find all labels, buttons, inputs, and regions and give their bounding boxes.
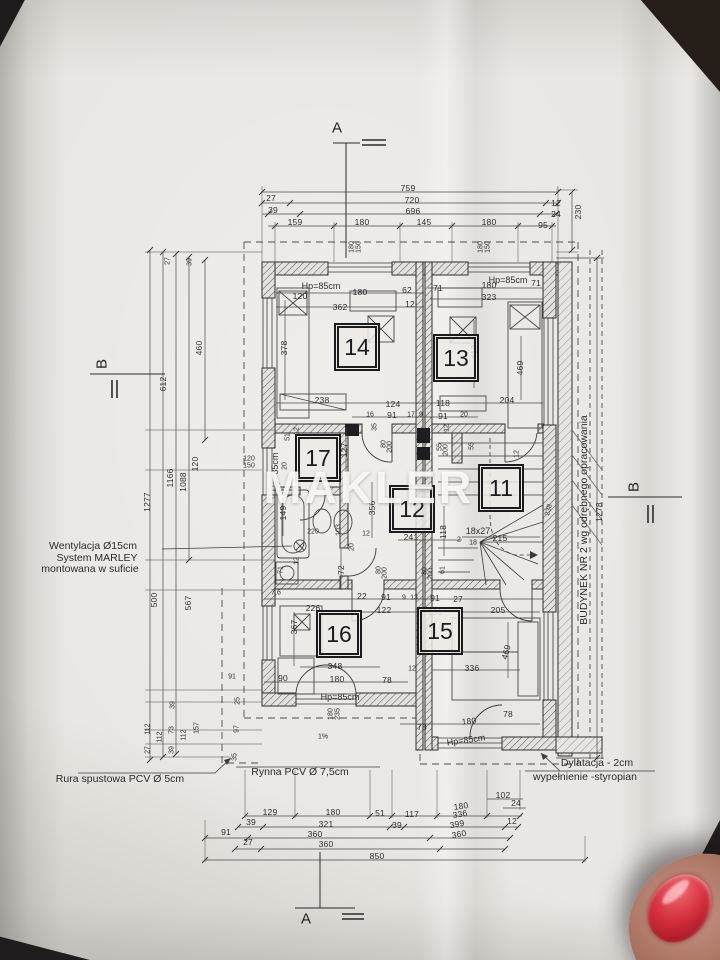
dim-label: 180	[461, 715, 477, 726]
dim-label: 12	[551, 198, 561, 208]
dim-label: 27	[266, 193, 276, 203]
dim-label: 122	[377, 605, 392, 615]
dim-label: wypełnienie -styropian	[533, 771, 637, 783]
dim-label: 22	[357, 591, 367, 601]
dim-label: 129	[263, 807, 278, 817]
dim-label: 35	[372, 423, 379, 431]
dim-label: 39	[392, 820, 402, 830]
dim-label: 200	[387, 441, 394, 453]
page: { "watermark": "MAKLER", "colors": { "pa…	[0, 0, 720, 960]
dim-label: B	[94, 359, 111, 369]
dim-label: 180	[328, 708, 335, 720]
makler-watermark: MAKLER	[264, 462, 474, 514]
dim-label: 12	[294, 557, 301, 565]
dim-label: A	[332, 120, 342, 137]
dim-label: 500	[149, 593, 159, 608]
dim-label: 469	[515, 361, 525, 376]
dim-label: 205	[491, 605, 506, 615]
dim-label: 12	[507, 816, 517, 826]
dim-label: 159	[288, 217, 303, 227]
dim-label: 360	[451, 828, 467, 840]
dim-label: Dylatacja - 2cm	[561, 757, 633, 769]
dim-label: 12	[444, 424, 451, 432]
dim-label: 118	[438, 525, 448, 539]
dim-label: 90	[278, 673, 288, 683]
dim-label: 24	[511, 798, 521, 808]
dim-label: 180	[330, 674, 345, 684]
dim-label: 378	[279, 341, 289, 356]
dim-label: 367	[289, 620, 299, 635]
dim-label: 180	[326, 807, 341, 817]
dim-label: 336	[465, 663, 480, 673]
dim-label: 72	[336, 565, 346, 575]
dim-label: 9	[402, 595, 406, 602]
dim-label: 150	[243, 463, 255, 470]
dim-label: 12	[514, 450, 521, 458]
dim-label: 1278	[594, 502, 604, 522]
dim-label: B	[626, 482, 643, 492]
dim-label: 567	[183, 596, 193, 611]
dim-label: 180	[349, 241, 356, 253]
dim-label: 150	[485, 241, 492, 253]
dim-label: 78	[417, 722, 427, 732]
dim-label: 18x27	[466, 526, 491, 536]
dim-label: 20	[349, 543, 356, 551]
dim-label: 200	[443, 444, 450, 456]
dim-label: 200	[382, 567, 389, 579]
dim-label: 71	[433, 283, 443, 293]
room-number-13: 13	[433, 334, 479, 382]
room-number-15: 15	[417, 607, 463, 655]
dim-label: 27	[243, 837, 253, 847]
dim-label: 39	[169, 746, 176, 754]
dim-label: 469	[499, 644, 512, 661]
dim-label: 180	[482, 280, 497, 290]
dim-label: 238	[544, 503, 554, 516]
dim-label: 460	[194, 341, 204, 356]
dim-label: 321	[319, 819, 334, 829]
dim-label: 1088	[178, 472, 188, 492]
dim-label: 71	[278, 566, 285, 574]
dim-label: 51	[285, 433, 292, 441]
dim-label: 25	[235, 697, 242, 705]
room-number-16: 16	[316, 610, 362, 658]
dim-label: 12	[408, 666, 416, 673]
dim-label: BUDYNEK NR 2 wg odrębnego opracowania	[578, 415, 590, 625]
dim-label: 91	[387, 410, 397, 420]
dim-label: 323	[482, 292, 497, 302]
dim-label: 204	[500, 395, 515, 405]
dim-label: 360	[308, 829, 323, 839]
dim-label: Hp=85cm	[321, 692, 360, 702]
dim-label: 55	[469, 442, 476, 450]
dim-label: 9	[419, 412, 423, 419]
dim-label: 150	[356, 241, 363, 253]
dim-label: 16	[366, 412, 374, 419]
dim-label: 1%	[318, 734, 328, 741]
dim-label: 362	[333, 302, 348, 312]
dim-label: 1166	[165, 468, 175, 487]
dim-label: 235	[335, 708, 342, 720]
dim-label: 696	[406, 206, 421, 216]
dim-label: 112	[157, 731, 164, 742]
dim-label: 91	[221, 827, 231, 837]
dim-label: 27	[165, 257, 172, 265]
dim-label: 78	[382, 675, 392, 685]
dim-label: 39	[246, 817, 256, 827]
dim-label: 112	[145, 723, 152, 734]
dim-label: 180	[355, 217, 370, 227]
dim-label: 39	[268, 205, 278, 215]
dim-label: 759	[401, 183, 416, 193]
dim-label: 215	[493, 533, 508, 543]
dim-label: 12	[405, 299, 415, 309]
dim-label: 18	[469, 540, 477, 547]
dim-label: 112	[181, 729, 188, 740]
dim-label: 145	[417, 217, 432, 227]
dim-label: 78	[503, 709, 513, 719]
dim-label: 220	[307, 529, 319, 536]
dim-label: Wentylacja Ø15cm	[49, 540, 137, 552]
dim-label: Hp=85cm	[302, 281, 341, 291]
dim-label: 97	[234, 725, 241, 733]
dim-label: 27	[145, 746, 152, 754]
dim-label: 850	[370, 851, 385, 861]
dim-label: 17	[407, 412, 415, 419]
dim-label: 71	[531, 278, 541, 288]
dim-label: 62	[402, 285, 412, 295]
dim-label: 720	[405, 195, 420, 205]
dim-label: 51	[375, 808, 385, 818]
dim-label: 118	[436, 398, 450, 408]
dim-label: 95	[538, 220, 548, 230]
dim-label: 12	[362, 531, 370, 538]
dim-label: 91	[438, 411, 448, 421]
dim-label: 39	[170, 701, 177, 709]
dim-label: 1277	[142, 492, 152, 512]
dim-label: 348	[328, 661, 343, 671]
dim-label: A	[301, 911, 311, 928]
dim-label: Rura spustowa PCV Ø 5cm	[56, 773, 184, 785]
dim-label: 2	[457, 537, 461, 544]
dim-label: 180	[353, 287, 368, 297]
dim-label: 102	[496, 790, 511, 800]
dim-label: 103	[336, 524, 343, 536]
dim-label: 180	[478, 241, 485, 253]
dim-label: 7,6	[271, 590, 281, 597]
dim-label: 124	[386, 399, 401, 409]
dim-label: 200	[428, 568, 435, 580]
dim-label: 120	[293, 291, 308, 301]
dim-label: 20	[460, 412, 468, 419]
dim-label: 360	[319, 839, 334, 849]
dim-label: 61	[440, 566, 447, 574]
dim-label: montowana w suficie	[41, 563, 138, 575]
dim-label: 27	[453, 594, 463, 604]
dim-label: Hp=85cm	[446, 732, 486, 747]
dim-label: 120	[243, 456, 255, 463]
dim-label: 238	[315, 395, 330, 405]
dim-label: 24	[551, 209, 561, 219]
dim-label: 117	[405, 809, 419, 819]
dim-label: 241	[404, 532, 419, 542]
dim-label: Rynna PCV Ø 7,5cm	[251, 766, 348, 778]
dim-label: 230	[573, 205, 583, 220]
floor-plan-photo: 7592772012396962415918014518095230180150…	[0, 0, 720, 960]
dim-label: 91	[430, 593, 440, 603]
dim-label: 35	[232, 753, 239, 761]
dim-label: 157	[194, 722, 201, 734]
dim-label: 73	[169, 726, 176, 734]
dim-label: 91	[381, 592, 391, 602]
dim-label: 612	[158, 377, 168, 392]
room-number-11: 11	[478, 464, 524, 512]
dim-label: 39	[187, 258, 194, 266]
dim-label: 91	[228, 674, 236, 681]
room-number-14: 14	[334, 323, 380, 371]
dim-label: 13	[410, 595, 418, 602]
dim-label: 120	[190, 457, 200, 472]
dim-label: 180	[482, 217, 497, 227]
